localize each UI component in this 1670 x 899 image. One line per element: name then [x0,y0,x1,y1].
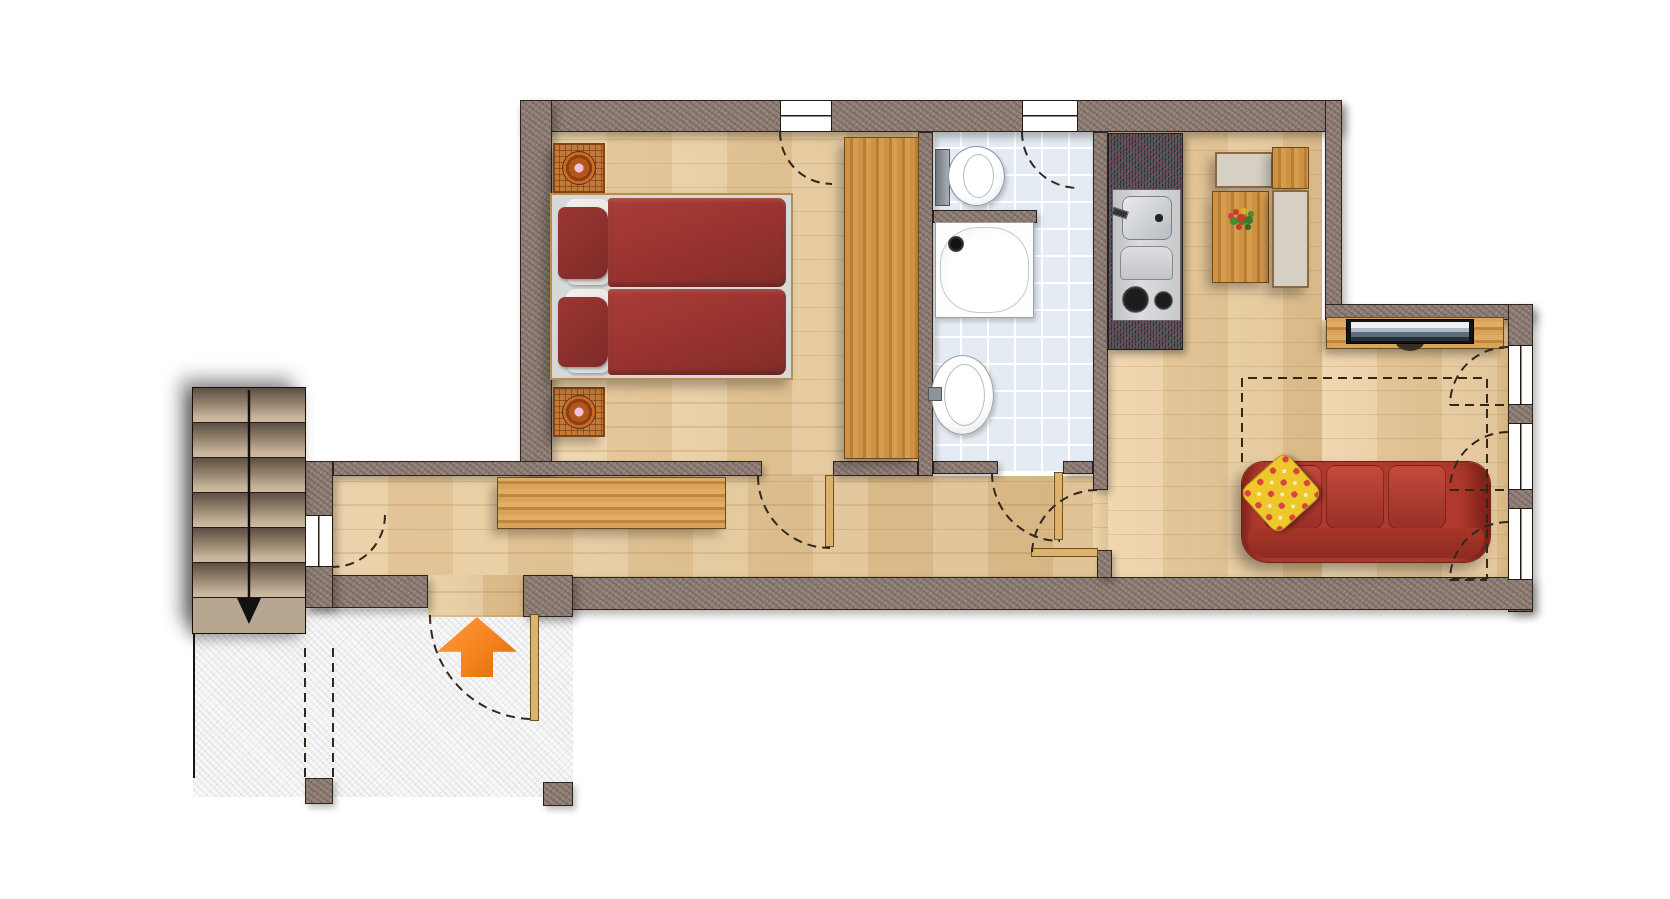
notch-vertical-wall [1325,100,1342,306]
bedroom-bottom-wall [833,461,918,476]
double-bed [550,193,793,380]
shower-drain-icon [948,236,964,252]
stair-step [193,563,305,598]
porch-left-edge [193,633,195,778]
porch-stub-right [543,782,573,806]
kitchen-sink-drain [1155,214,1163,222]
stair-step [193,458,305,493]
sofa-cushion [1326,465,1384,529]
dining-bench-right [1272,190,1309,288]
kitchenette-unit [1113,190,1180,320]
living-window-1 [1508,345,1533,405]
tv-icon [1347,320,1473,343]
pillow-red-bottom [558,297,608,367]
entrance-threshold-floor [428,575,523,617]
hallway-window [305,515,333,567]
porch-stub-left [305,778,333,804]
living-door-pier [1097,550,1112,578]
shower-tray [935,222,1034,318]
burner-small-icon [1154,291,1173,310]
kitchen-sink-icon [1122,196,1172,240]
bottom-exterior-wall [523,577,1533,610]
bathroom-bottom-wall-right [1063,461,1093,474]
bathroom-kitchen-wall [1093,132,1108,490]
flower-bouquet-icon [1237,214,1245,222]
lamp-icon [562,151,596,185]
hallway-top-wall [333,461,762,476]
entrance-door-leaf [531,615,538,720]
toilet-icon [948,146,1005,206]
dining-bench-top [1215,152,1273,188]
bedroom-bathroom-wall [918,132,933,476]
stair-landing [193,598,305,633]
nightstand-top [553,143,605,193]
duvet-top [608,198,786,287]
sofa-backrest [1248,528,1484,558]
bathroom-window [1022,100,1078,132]
tv-screen [1351,322,1469,341]
basin-faucet-icon [929,388,941,400]
stair-step [193,388,305,423]
stair-step [193,493,305,528]
bedroom-door-leaf [826,476,833,546]
staircase [193,388,305,633]
sofa-cushion [1388,465,1446,529]
living-window-2 [1508,423,1533,490]
floor-plan [0,0,1670,899]
pillow-red-top [558,207,608,279]
nightstand-bottom [553,387,605,437]
top-exterior-wall [520,100,1342,132]
living-room-door-leaf [1032,549,1097,556]
doorway-floor [1093,490,1108,552]
bedroom-window [780,100,832,132]
kitchen-drawer [1120,246,1173,280]
dining-table [1213,192,1268,282]
stair-step [193,423,305,458]
bathroom-bottom-wall-left [933,461,998,474]
lamp-icon [562,395,596,429]
wardrobe [845,138,918,458]
living-window-3 [1508,508,1533,580]
entrance-porch-floor [193,609,573,797]
stair-step [193,528,305,563]
bathroom-door-leaf [1055,473,1062,539]
dining-side-block [1273,148,1308,188]
duvet-bottom [608,289,786,375]
hallway-sideboard [498,478,725,528]
burner-large-icon [1122,286,1149,313]
entrance-right-wall [523,575,573,617]
bedroom-left-exterior-wall [520,100,552,476]
